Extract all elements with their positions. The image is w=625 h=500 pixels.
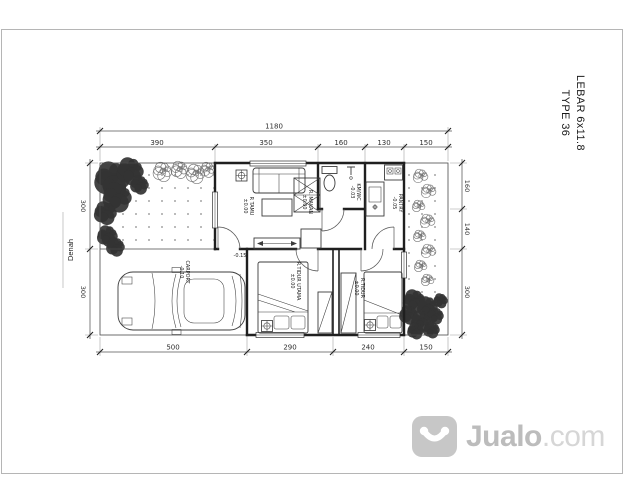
dim-bottom-4: 150 xyxy=(419,344,432,352)
room-label-pantry: PANTRY -0.05 xyxy=(391,194,403,213)
room-label-living: R TAMU ±0.00 xyxy=(242,197,254,216)
entry-door xyxy=(218,227,240,249)
dim-right-1: 160 xyxy=(463,180,471,192)
side-table xyxy=(301,229,321,248)
jualo-logo-icon xyxy=(412,416,457,457)
bathroom-door xyxy=(322,209,344,231)
dim-left-1: 300 xyxy=(79,200,87,212)
window-living-top xyxy=(250,161,306,166)
room-level: ±0.00 xyxy=(353,281,359,296)
window-living-left xyxy=(213,192,218,228)
dim-top-2: 350 xyxy=(259,139,272,147)
walls xyxy=(215,163,404,335)
dim-top-5: 150 xyxy=(419,139,432,147)
room-level: -0.05 xyxy=(391,197,397,210)
watermark-tld: .com xyxy=(542,420,605,453)
tv-console xyxy=(254,238,300,249)
drawing-title: Denah xyxy=(66,239,75,261)
coffee-table xyxy=(262,199,292,216)
room-level: ±0.00 xyxy=(289,274,295,289)
room-label-bathroom: KM/WC -0.03 xyxy=(349,183,361,201)
drawing-title-text: Denah xyxy=(66,239,75,261)
room-level: -0.10 xyxy=(178,266,184,279)
room-level: ±0.00 xyxy=(301,195,307,210)
dim-top-total: 1180 xyxy=(265,123,283,131)
dim-top-1: 390 xyxy=(150,139,163,147)
dim-bottom-2: 290 xyxy=(283,344,296,352)
dim-top-3: 160 xyxy=(334,139,347,147)
smiley-icon xyxy=(412,416,457,457)
screenshot-canvas: R TAMU ±0.00 R. MAKAN ±0.00 KM/WC -0.03 … xyxy=(0,0,625,500)
entry-level-label: -0.15 xyxy=(234,253,247,259)
room-level: ±0.00 xyxy=(242,199,248,214)
toilet xyxy=(322,167,337,192)
watermark-brand: Jualo xyxy=(466,420,542,453)
title-line-1: LEBAR 6x11.8 xyxy=(574,75,586,151)
room-label-bedroom-2: R.TIDUR ±0.00 xyxy=(353,278,365,299)
room-label-bedroom-main: R.TIDUR UTAMA ±0.00 xyxy=(289,262,301,301)
column-symbol xyxy=(236,170,247,181)
sofa xyxy=(253,168,305,193)
title-block: LEBAR 6x11.8 TYPE 36 xyxy=(559,75,586,151)
bedroom2-door xyxy=(361,249,383,271)
stove xyxy=(385,165,403,180)
wardrobe-main xyxy=(318,292,332,333)
dim-right-3: 300 xyxy=(463,286,471,298)
dim-bottom-3: 240 xyxy=(361,344,374,352)
room-level: -0.03 xyxy=(349,186,355,199)
pantry-door xyxy=(372,227,394,249)
kitchen-sink-counter xyxy=(366,182,384,216)
dim-left-2: 300 xyxy=(79,286,87,298)
column-symbol xyxy=(262,321,273,332)
dim-right-2: 140 xyxy=(463,223,471,235)
watermark-text: Jualo.com xyxy=(466,416,605,457)
room-label-dining: R. MAKAN ±0.00 xyxy=(301,190,313,214)
room-label-carport: CARPORT -0.10 xyxy=(178,261,190,284)
watermark: Jualo.com xyxy=(412,416,605,457)
dim-top-4: 130 xyxy=(377,139,390,147)
column-symbol xyxy=(365,320,376,331)
shower-head xyxy=(347,167,355,179)
title-line-2: TYPE 36 xyxy=(559,90,571,137)
dim-bottom-1: 500 xyxy=(166,344,179,352)
